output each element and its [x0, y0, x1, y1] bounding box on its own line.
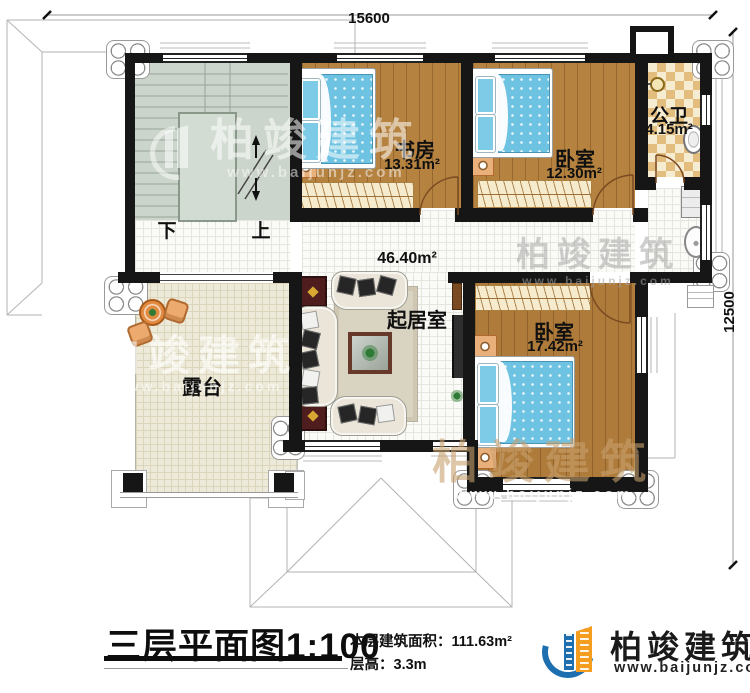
floor-area-line: 本层建筑面积：111.63m²	[350, 630, 512, 651]
nightstand	[473, 335, 497, 358]
wall	[423, 53, 495, 63]
company-logo: 柏竣建筑 www.baijunjz.com	[540, 618, 745, 684]
wall	[247, 53, 337, 63]
side-cabinet	[299, 276, 327, 307]
bedroom-bottom-wardrobe	[475, 285, 591, 311]
terrace-railing	[160, 274, 273, 281]
floor-height-line: 层高：3.3m	[350, 653, 427, 674]
room-area-living: 46.40m²	[362, 250, 452, 268]
stair-landing	[178, 112, 237, 222]
plan-title: 三层平面图1:100	[106, 618, 381, 669]
wall	[290, 208, 420, 222]
window	[433, 440, 467, 452]
wall	[648, 177, 656, 190]
floor-height-value: 3.3m	[394, 657, 427, 673]
floor-height-label: 层高：	[350, 657, 394, 673]
terrace-column	[274, 473, 294, 493]
terrace-column	[123, 473, 143, 493]
wall	[380, 440, 433, 452]
wall	[125, 63, 135, 283]
window	[337, 53, 423, 63]
logo-icon	[540, 620, 606, 682]
wall	[461, 63, 473, 222]
terrace-edge	[120, 492, 298, 498]
floor-area-label: 本层建筑面积：	[350, 634, 452, 650]
room-area-study: 13.31m²	[372, 156, 452, 173]
window	[495, 53, 585, 63]
wall	[118, 272, 160, 283]
wall	[635, 373, 648, 492]
room-label-living: 起居室	[372, 304, 462, 333]
wall	[700, 125, 712, 205]
floor-plant	[450, 389, 464, 403]
room-area-bedroom-top: 12.30m²	[532, 165, 616, 182]
dimension-right: 12500	[721, 277, 737, 347]
title-underline-thin	[104, 668, 348, 669]
vent-shaft	[630, 26, 674, 60]
wall	[467, 477, 503, 492]
bedroom-bottom-bed	[473, 356, 575, 448]
nightstand	[472, 155, 494, 176]
window	[700, 95, 712, 125]
shower-icon	[650, 77, 665, 92]
bedroom-top-wardrobe	[477, 180, 592, 208]
window	[700, 205, 712, 260]
dimension-top: 15600	[334, 10, 404, 27]
wall	[290, 63, 302, 222]
room-area-bedroom-bottom: 17.42m²	[513, 338, 597, 355]
window	[305, 440, 380, 452]
outdoor-unit	[687, 285, 714, 308]
study-wardrobe	[295, 182, 414, 210]
wall	[633, 208, 648, 222]
room-area-bathroom: 4.15m²	[641, 121, 697, 138]
wall	[684, 177, 712, 190]
wall	[455, 208, 473, 222]
room-label-terrace: 露台	[176, 371, 228, 400]
window	[163, 53, 247, 63]
logo-site: www.baijunjz.com	[614, 660, 750, 676]
wall	[700, 63, 712, 95]
wall	[630, 272, 712, 283]
study-bed	[296, 68, 376, 169]
wall	[448, 272, 590, 283]
window	[635, 317, 648, 373]
table-plant	[361, 344, 379, 362]
window	[503, 477, 570, 492]
title-underline-thick	[104, 656, 342, 661]
wall	[463, 283, 475, 440]
wall	[283, 440, 305, 452]
stairs-down-label: 下	[152, 216, 182, 243]
wall	[289, 274, 302, 452]
sofa-bottom	[330, 396, 407, 436]
wall	[473, 208, 593, 222]
wall	[635, 283, 648, 317]
floor-area-value: 111.63m²	[452, 634, 512, 650]
stairs-up-label: 上	[246, 216, 276, 243]
wall	[125, 53, 163, 63]
floor-plan: 15600 12500 书房 13.31m² 卧室 12.30m² 公卫 4.1…	[0, 0, 750, 693]
